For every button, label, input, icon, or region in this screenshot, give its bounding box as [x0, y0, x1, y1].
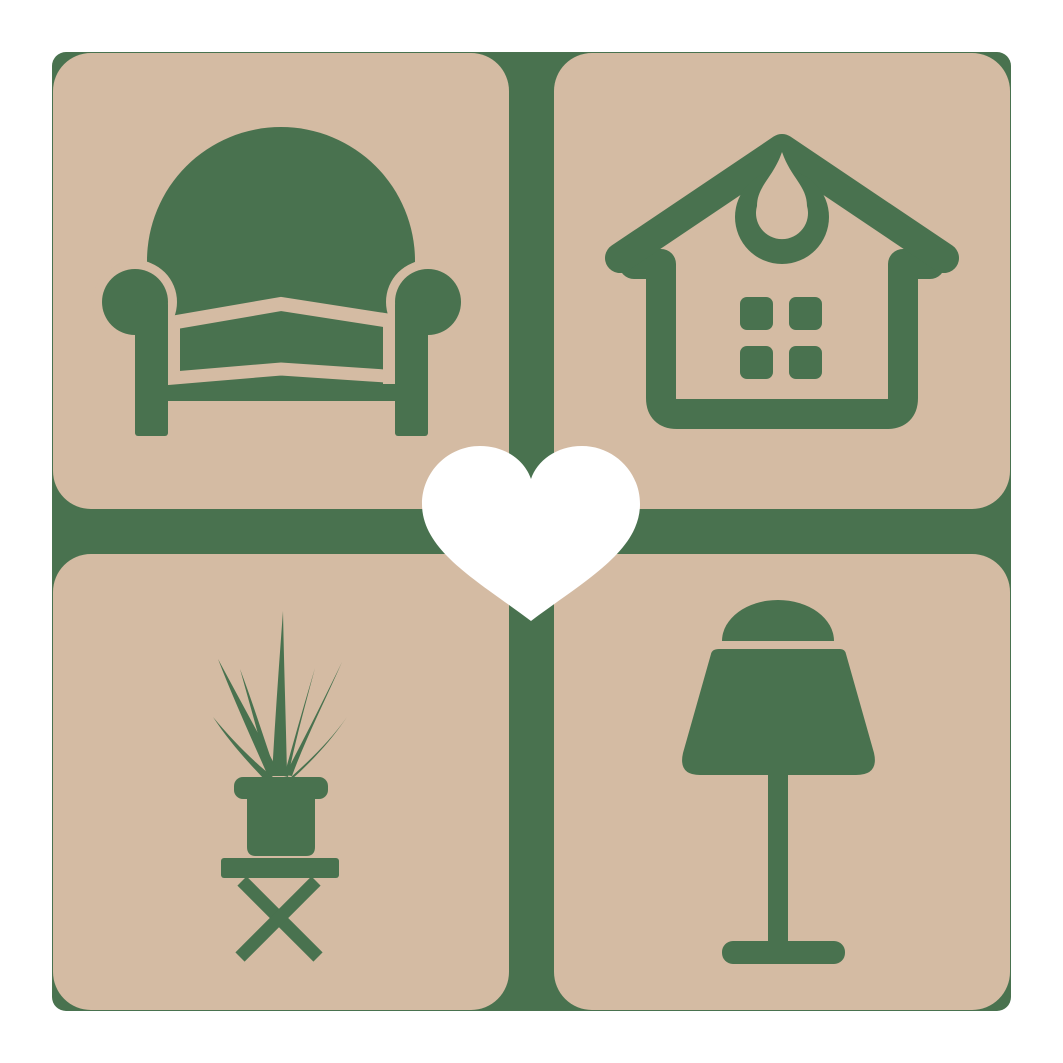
logo-canvas: [0, 0, 1063, 1063]
house-window-bottom-left: [740, 346, 773, 379]
stool-top: [221, 858, 339, 878]
lamp-base: [722, 941, 845, 964]
house-window-top-left: [740, 297, 773, 330]
armchair-leg-left: [135, 302, 168, 436]
armchair-leg-right: [395, 302, 428, 436]
house-window-bottom-right: [789, 346, 822, 379]
lamp-shade: [682, 649, 875, 775]
lamp-stem: [768, 770, 788, 950]
house-window-top-right: [789, 297, 822, 330]
plant-pot-rim: [234, 777, 328, 799]
tile-top-right: [554, 53, 1010, 509]
logo-graphic: [0, 0, 1063, 1063]
plant-pot-body: [247, 799, 315, 856]
